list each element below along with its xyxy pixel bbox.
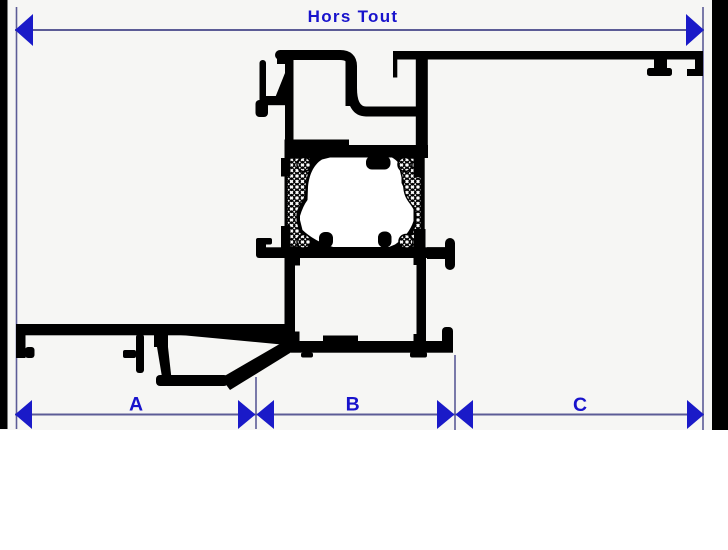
svg-text:Hors Tout: Hors Tout bbox=[308, 7, 399, 26]
svg-text:C: C bbox=[573, 394, 587, 416]
svg-text:A: A bbox=[129, 394, 143, 416]
svg-text:B: B bbox=[346, 394, 360, 416]
